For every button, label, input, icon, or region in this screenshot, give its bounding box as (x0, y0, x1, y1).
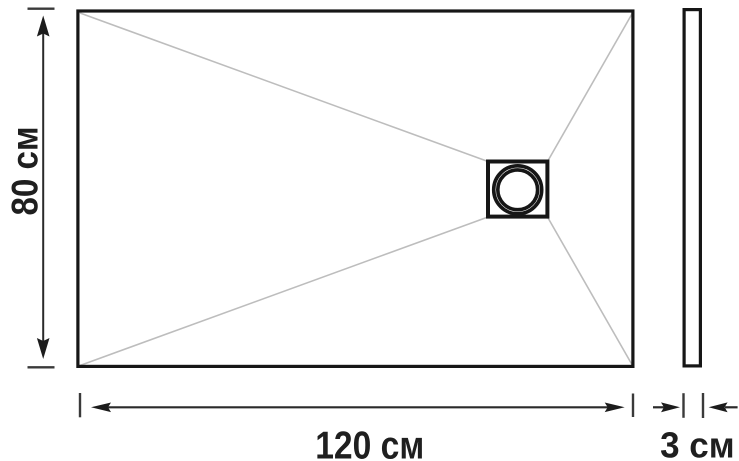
svg-text:80 см: 80 см (4, 127, 46, 216)
svg-text:120 см: 120 см (315, 425, 424, 461)
svg-text:3 см: 3 см (660, 424, 735, 461)
